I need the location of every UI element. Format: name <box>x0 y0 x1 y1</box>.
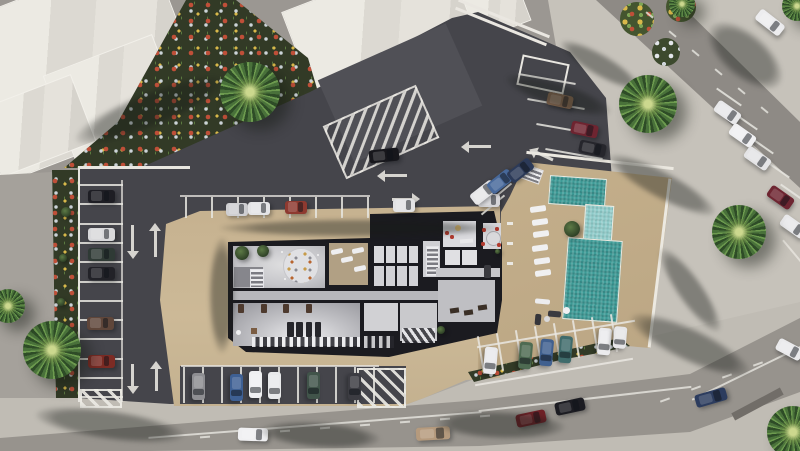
parked-car <box>88 190 115 203</box>
shrub <box>57 298 65 306</box>
deck-sofa-dark <box>548 310 561 317</box>
gym-machines <box>261 304 267 313</box>
deck-tick <box>507 222 513 225</box>
lounge-chair-red <box>450 235 453 238</box>
parked-car <box>393 199 415 212</box>
backline-leftcol <box>121 180 123 402</box>
treatment-cabins-row2 <box>374 266 384 286</box>
lobby-round-rug <box>283 248 319 284</box>
palm-tree <box>23 321 81 379</box>
dining-chair-red <box>497 243 500 246</box>
parking-dividers-bottomrow <box>335 367 337 403</box>
site-plan-canvas <box>0 0 800 451</box>
parking-dividers-left <box>80 242 123 244</box>
parked-car <box>88 228 115 241</box>
gym-machines <box>306 304 312 313</box>
sofa-east <box>484 265 491 278</box>
no-parking-hatch-south <box>357 368 406 408</box>
parking-dividers-toprow <box>315 197 317 218</box>
palm-tree <box>220 62 280 122</box>
parked-car <box>230 374 243 401</box>
parking-dividers-left <box>80 300 123 302</box>
gym-treadmills <box>296 322 303 337</box>
room-small-a <box>445 250 460 265</box>
driving-car <box>368 147 399 163</box>
treatment-cabins-row2 <box>409 266 419 286</box>
pool-upper <box>548 175 607 208</box>
deck-sofa-dark <box>535 314 542 325</box>
lane-arrow-up <box>150 361 162 391</box>
palm-tree <box>712 205 766 259</box>
parking-dividers-bottomrow <box>297 367 299 403</box>
curb-line-top <box>78 166 190 169</box>
parked-car <box>285 201 307 214</box>
parking-dividers-left <box>80 223 123 225</box>
treatment-cabins-row1 <box>397 246 407 263</box>
building-shadow-west <box>209 238 235 353</box>
room-coworking <box>438 280 495 322</box>
lane-arrow-down <box>127 225 139 259</box>
parking-dividers-toprow <box>211 197 213 218</box>
lane-arrow-left <box>461 141 491 153</box>
parking-curb-bottomrow <box>181 365 379 367</box>
treatment-cabins-row1 <box>374 246 384 263</box>
carport-car <box>482 346 497 374</box>
parked-car <box>88 248 115 261</box>
gym-bench <box>251 328 257 334</box>
carport-car <box>538 338 553 366</box>
deck-tick <box>507 262 513 265</box>
vestibule-louver <box>364 336 394 348</box>
shrub <box>61 207 71 217</box>
palm-tree <box>619 75 677 133</box>
hall-plant <box>437 326 445 334</box>
parked-car <box>268 372 281 399</box>
parking-dividers-left <box>80 338 123 340</box>
louver-glazing-south <box>402 328 435 343</box>
lobby-plant <box>235 246 249 260</box>
parked-car <box>87 317 114 330</box>
gym-machines <box>283 304 289 313</box>
gym-treadmills <box>315 322 322 337</box>
parked-car <box>88 267 115 280</box>
carport-car <box>613 325 628 348</box>
gym-louver-glazing <box>252 337 360 347</box>
stairs-flight-a <box>250 269 264 288</box>
parking-dividers-toprow <box>185 197 187 218</box>
treatment-cabins-row1 <box>386 246 396 263</box>
planter-circle-white <box>652 38 680 66</box>
lane-arrow-left <box>377 170 407 182</box>
room-back-a <box>364 303 398 331</box>
no-parking-hatch-left <box>80 389 122 408</box>
parking-dividers-bottomrow <box>221 367 223 403</box>
parking-dividers-left <box>80 261 123 263</box>
parking-dividers-left <box>80 377 123 379</box>
pool-shallow-step <box>583 204 615 243</box>
parked-car <box>88 355 115 368</box>
carport-car <box>557 335 572 363</box>
dining-chair-red <box>481 242 484 245</box>
parking-dividers-left <box>80 203 123 205</box>
gym-machines <box>238 304 244 313</box>
building-shadow-north <box>220 219 500 237</box>
pool-main <box>562 237 623 323</box>
lane-arrow-up <box>149 223 161 257</box>
deck-tick <box>507 242 513 245</box>
gym-treadmills <box>306 322 313 337</box>
parking-dividers-left <box>80 281 123 283</box>
parked-car <box>348 373 361 400</box>
parked-car <box>226 203 248 216</box>
deck-table <box>544 316 550 322</box>
gym-treadmills <box>287 322 294 337</box>
dining-plant <box>495 249 500 254</box>
parking-dividers-toprow <box>341 197 343 218</box>
room-small-b <box>462 250 477 265</box>
parking-dividers-left <box>80 184 123 186</box>
treatment-cabins-row2 <box>386 266 396 286</box>
parked-car <box>248 202 270 215</box>
carport-car <box>596 327 611 355</box>
deck-parasol <box>563 307 570 314</box>
parking-dividers-bottomrow <box>183 367 185 403</box>
treatment-cabins-row1 <box>409 246 419 263</box>
parked-car <box>307 372 320 399</box>
shrub <box>59 254 67 262</box>
parked-car <box>249 371 262 398</box>
lobby-plant <box>257 245 269 257</box>
planter-circle <box>620 2 654 36</box>
pool-planter <box>564 221 580 237</box>
gym-ball <box>236 330 241 335</box>
carport-car <box>517 341 532 369</box>
treatment-cabins-row2 <box>397 266 407 286</box>
parked-car <box>192 373 205 400</box>
lane-arrow-down <box>127 364 139 394</box>
parking-dividers-toprow <box>367 197 369 218</box>
